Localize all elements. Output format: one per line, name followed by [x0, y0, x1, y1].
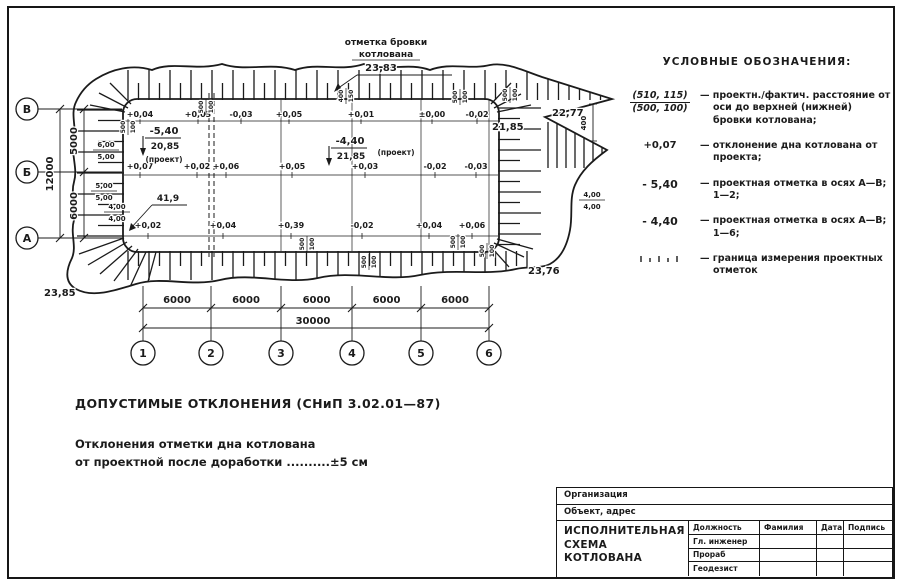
svg-text:Б: Б: [23, 166, 31, 179]
boundary-hatch-symbol: [620, 253, 700, 267]
mark-symbol: - 5,40: [620, 178, 700, 191]
svg-text:6000: 6000: [232, 295, 260, 306]
svg-text:(проект): (проект): [377, 148, 414, 157]
svg-text:В: В: [23, 103, 31, 116]
legend-item-mark-ab16: - 4,40 — проектная отметка в осях А—В; 1…: [620, 215, 894, 240]
pit-bottom-edge: [123, 99, 499, 252]
tolerance-line-2: от проектной после доработки ..........±…: [75, 453, 535, 471]
svg-text:+0,01: +0,01: [348, 110, 375, 119]
svg-text:(проект): (проект): [145, 155, 182, 164]
svg-text:400: 400: [580, 116, 588, 131]
svg-text:+0,05: +0,05: [279, 162, 306, 171]
svg-text:-4,40: -4,40: [336, 136, 365, 147]
svg-text:4,00: 4,00: [583, 203, 600, 211]
edge-distance-pair: 500100: [452, 89, 469, 105]
svg-text:500: 500: [198, 101, 205, 114]
svg-text:500: 500: [361, 256, 368, 269]
role-foreman: Прораб: [689, 549, 760, 563]
svg-text:500: 500: [502, 89, 509, 102]
legend-item-text: — граница измерения проектных отметок: [700, 253, 894, 278]
svg-text:+0,06: +0,06: [213, 162, 240, 171]
svg-text:-5,40: -5,40: [150, 126, 179, 137]
svg-text:100: 100: [462, 91, 469, 104]
svg-text:А: А: [23, 232, 32, 245]
signature-cell: [844, 549, 892, 563]
date-cell: [817, 562, 844, 576]
svg-text:41,9: 41,9: [157, 194, 179, 204]
mark-symbol: - 4,40: [620, 215, 700, 228]
object-address-row: Объект, адрес: [557, 505, 892, 521]
svg-text:150: 150: [348, 90, 355, 103]
legend: УСЛОВНЫЕ ОБОЗНАЧЕНИЯ: (510, 115) (500, 1…: [620, 56, 894, 291]
legend-item-text: — отклонение дна котлована от проекта;: [700, 140, 894, 165]
svg-text:отметка бровки: отметка бровки: [345, 37, 427, 48]
svg-text:-0,02: -0,02: [350, 221, 373, 230]
svg-text:5: 5: [417, 347, 425, 360]
role-chief-engineer: Гл. инженер: [689, 535, 760, 549]
legend-title: УСЛОВНЫЕ ОБОЗНАЧЕНИЯ:: [620, 56, 894, 68]
svg-text:21,85: 21,85: [337, 152, 365, 162]
svg-text:4,00: 4,00: [108, 215, 125, 223]
svg-text:+0,05: +0,05: [276, 110, 303, 119]
edge-distance-pair: 500100: [450, 234, 467, 250]
date-cell: [817, 549, 844, 563]
role-surveyor: Геодезист: [689, 562, 760, 576]
title-block: Организация Объект, адрес ИСПОЛНИТЕЛЬНАЯ…: [556, 487, 893, 578]
legend-item-mark-ab12: - 5,40 — проектная отметка в осях А—В; 1…: [620, 178, 894, 203]
svg-text:100: 100: [460, 236, 467, 249]
svg-text:500: 500: [450, 236, 457, 249]
svg-text:6,00: 6,00: [97, 141, 114, 149]
legend-item-distance: (510, 115) (500, 100) — проектн./фактич.…: [620, 90, 894, 127]
svg-text:+0,04: +0,04: [210, 221, 237, 230]
drawing-sheet: +0,04+0,03-0,03+0,05+0,01±0,00-0,02+0,07…: [0, 0, 901, 584]
col-header-surname: Фамилия: [760, 521, 817, 535]
svg-text:23,76: 23,76: [528, 266, 560, 277]
svg-text:30000: 30000: [296, 316, 331, 327]
date-cell: [817, 535, 844, 549]
signature-cell: [844, 562, 892, 576]
svg-text:+0,04: +0,04: [127, 110, 154, 119]
svg-text:4: 4: [348, 347, 356, 360]
svg-text:100: 100: [208, 101, 215, 114]
svg-text:+0,06: +0,06: [459, 221, 486, 230]
svg-text:-0,02: -0,02: [423, 162, 446, 171]
svg-text:+0,03: +0,03: [352, 162, 378, 171]
svg-text:3: 3: [277, 347, 285, 360]
svg-text:-0,02: -0,02: [465, 110, 488, 119]
svg-text:-0,03: -0,03: [229, 110, 252, 119]
svg-text:100: 100: [489, 245, 496, 258]
svg-text:4,00: 4,00: [108, 203, 125, 211]
svg-text:±0,00: ±0,00: [419, 110, 446, 119]
tolerance-line-1: Отклонения отметки дна котлована: [75, 435, 535, 453]
svg-text:5000: 5000: [69, 127, 80, 155]
legend-item-deviation: +0,07 — отклонение дна котлована от прое…: [620, 140, 894, 165]
legend-item-text: — проектн./фактич. расстояние от оси до …: [700, 90, 894, 127]
deviation-symbol: +0,07: [620, 140, 700, 151]
organization-row: Организация: [557, 488, 892, 505]
svg-text:5,00: 5,00: [97, 153, 114, 161]
svg-text:+0,02: +0,02: [184, 162, 210, 171]
svg-text:4,00: 4,00: [583, 191, 600, 199]
svg-text:6000: 6000: [69, 192, 80, 220]
col-header-position: Должность: [689, 521, 760, 535]
surname-cell: [760, 562, 817, 576]
svg-text:500: 500: [120, 121, 127, 134]
svg-text:котлована: котлована: [359, 50, 413, 60]
tolerance-title: ДОПУСТИМЫЕ ОТКЛОНЕНИЯ (СНиП 3.02.01—87): [75, 396, 535, 411]
svg-text:5,00: 5,00: [95, 194, 112, 202]
svg-text:-0,03: -0,03: [464, 162, 487, 171]
signatures-table: Должность Фамилия Дата Подпись Гл. инжен…: [689, 521, 892, 576]
svg-text:100: 100: [130, 121, 137, 134]
svg-text:100: 100: [512, 89, 519, 102]
svg-text:+0,39: +0,39: [278, 221, 305, 230]
svg-text:100: 100: [309, 238, 316, 251]
svg-text:23,83: 23,83: [365, 63, 397, 74]
svg-text:+0,04: +0,04: [416, 221, 443, 230]
svg-text:500: 500: [299, 238, 306, 251]
legend-item-text: — проектная отметка в осях А—В; 1—6;: [700, 215, 894, 240]
tolerance-notes: ДОПУСТИМЫЕ ОТКЛОНЕНИЯ (СНиП 3.02.01—87) …: [75, 396, 535, 472]
col-header-date: Дата: [817, 521, 844, 535]
svg-text:400: 400: [338, 90, 345, 103]
svg-text:500: 500: [452, 91, 459, 104]
legend-item-text: — проектная отметка в осях А—В; 1—2;: [700, 178, 894, 203]
svg-text:500: 500: [479, 245, 486, 258]
svg-text:6: 6: [485, 347, 493, 360]
svg-text:22,77: 22,77: [552, 108, 584, 119]
boundary-hatch-icon: [637, 253, 683, 264]
svg-text:12000: 12000: [45, 157, 56, 192]
svg-text:2: 2: [207, 347, 215, 360]
edge-distance-pair: 400150: [338, 88, 355, 104]
svg-text:20,85: 20,85: [151, 142, 179, 152]
svg-text:+0,02: +0,02: [135, 221, 161, 230]
svg-text:6000: 6000: [303, 295, 331, 306]
distance-fraction-symbol: (510, 115) (500, 100): [620, 90, 700, 115]
svg-text:6000: 6000: [441, 295, 469, 306]
svg-text:1: 1: [139, 347, 147, 360]
svg-text:6000: 6000: [373, 295, 401, 306]
edge-distance-pair: 500100: [502, 87, 519, 103]
svg-text:5,00: 5,00: [95, 182, 112, 190]
surname-cell: [760, 535, 817, 549]
edge-distance-pair: 500100: [120, 119, 137, 135]
svg-text:23,85: 23,85: [44, 288, 76, 299]
col-header-signature: Подпись: [844, 521, 892, 535]
document-title: ИСПОЛНИТЕЛЬНАЯ СХЕМА КОТЛОВАНА: [557, 521, 689, 576]
edge-distance-pair: 500100: [299, 236, 316, 252]
fraction-top: (510, 115): [630, 90, 689, 103]
svg-text:6000: 6000: [163, 295, 191, 306]
svg-text:21,85: 21,85: [492, 122, 524, 133]
fraction-bottom: (500, 100): [632, 103, 687, 114]
surname-cell: [760, 549, 817, 563]
legend-item-boundary: — граница измерения проектных отметок: [620, 253, 894, 278]
signature-cell: [844, 535, 892, 549]
svg-text:100: 100: [371, 256, 378, 269]
